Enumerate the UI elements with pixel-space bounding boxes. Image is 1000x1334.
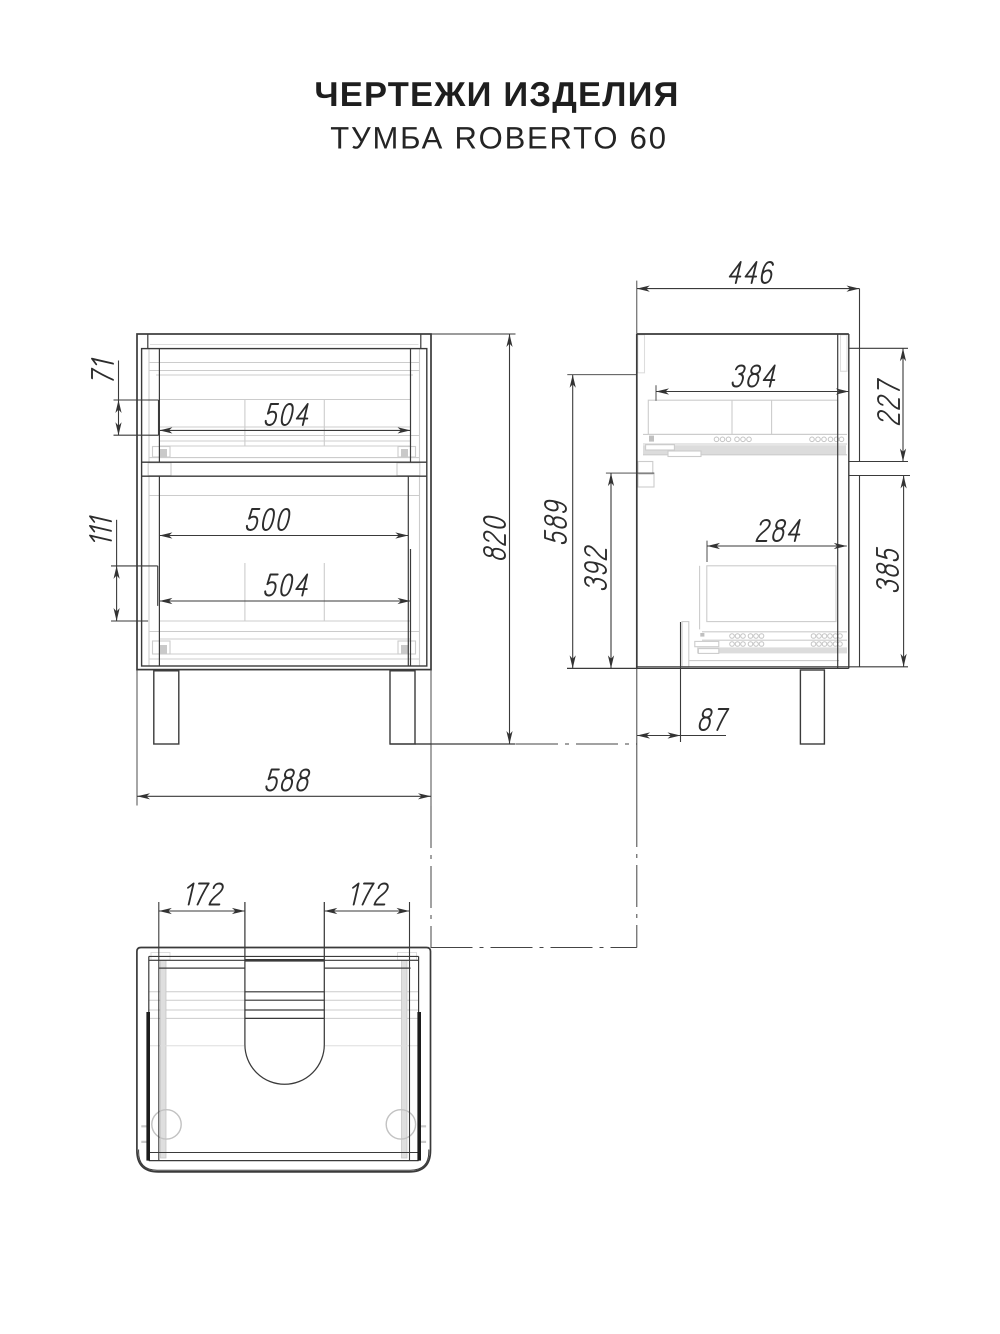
svg-text:ТУМБА ROBERTO 60: ТУМБА ROBERTO 60 <box>330 121 667 156</box>
svg-text:ЧЕРТЕЖИ ИЗДЕЛИЯ: ЧЕРТЕЖИ ИЗДЕЛИЯ <box>314 76 679 114</box>
